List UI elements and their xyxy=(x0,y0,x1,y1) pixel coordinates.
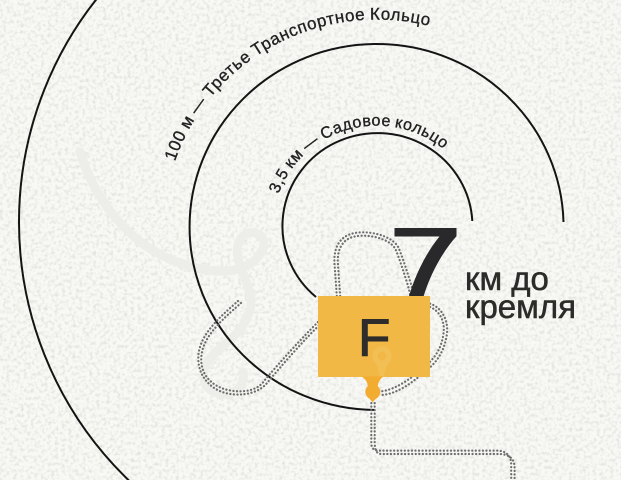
svg-text:F: F xyxy=(358,309,390,368)
svg-text:кремля: кремля xyxy=(465,288,576,325)
